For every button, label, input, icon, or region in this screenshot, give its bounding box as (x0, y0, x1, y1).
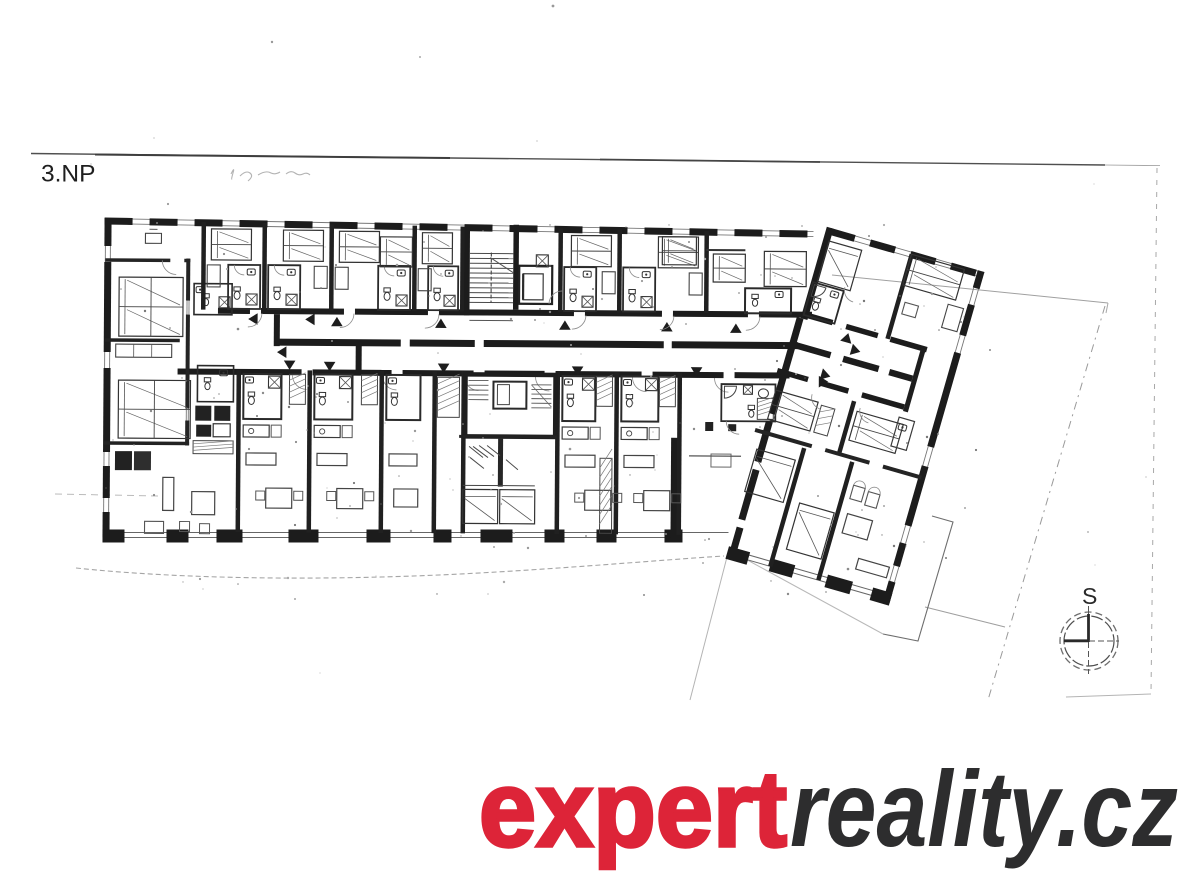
svg-text:expert: expert (479, 748, 787, 869)
svg-text:reality.cz: reality.cz (790, 748, 1178, 869)
svg-text:3.NP: 3.NP (41, 161, 95, 188)
svg-text:S: S (1082, 583, 1097, 609)
